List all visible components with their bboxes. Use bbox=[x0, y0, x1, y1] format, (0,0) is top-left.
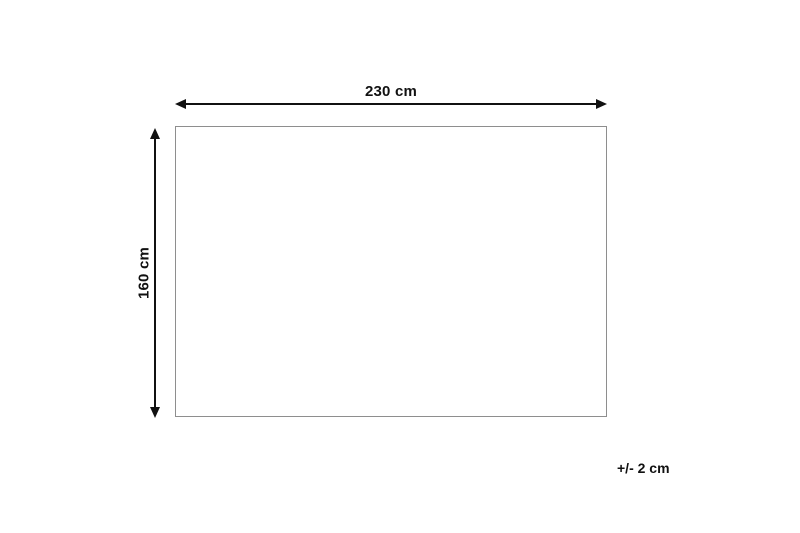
dimension-diagram: 230 cm 160 cm +/- 2 cm bbox=[0, 0, 800, 533]
arrowhead-right-icon bbox=[596, 99, 607, 109]
height-arrow-line bbox=[154, 133, 156, 413]
tolerance-label: +/- 2 cm bbox=[617, 460, 670, 476]
arrowhead-down-icon bbox=[150, 407, 160, 418]
height-dimension-label: 160 cm bbox=[136, 247, 153, 299]
width-arrow-line bbox=[180, 103, 602, 105]
product-outline-rectangle bbox=[175, 126, 607, 417]
width-dimension-label: 230 cm bbox=[175, 83, 607, 100]
